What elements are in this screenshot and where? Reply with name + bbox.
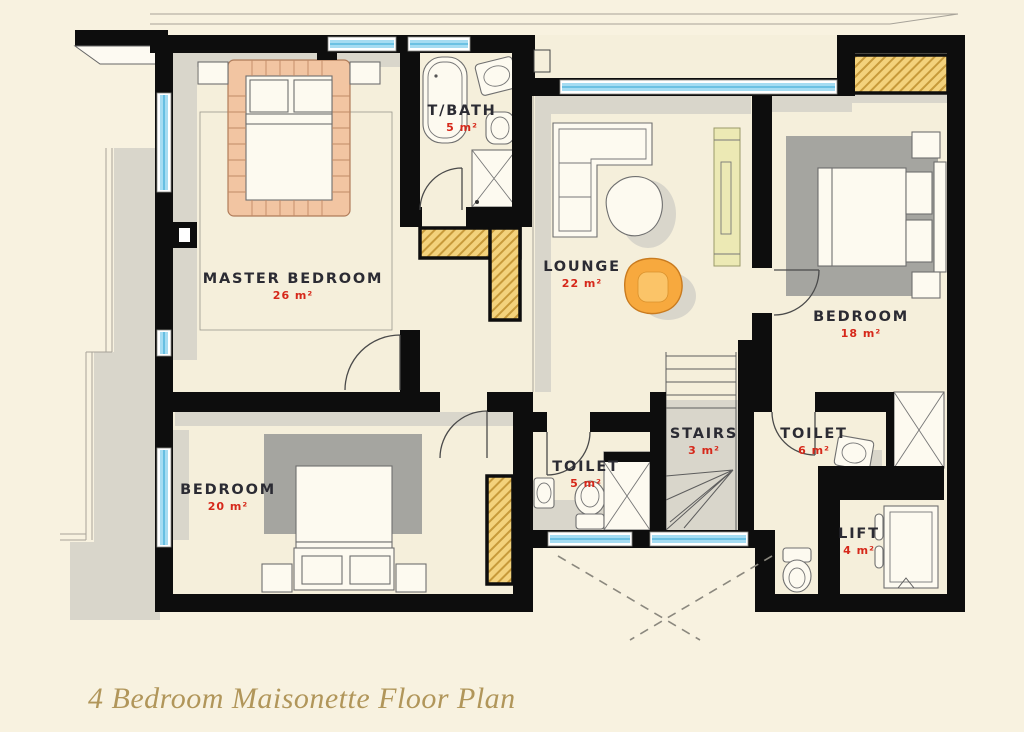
bedroom-right-shower: [894, 392, 944, 468]
window: [650, 532, 748, 546]
window: [560, 80, 837, 94]
room-name: BEDROOM: [813, 309, 909, 325]
room-area: 5 m²: [552, 478, 619, 490]
room-label-bedroom-bottom: BEDROOM 20 m²: [180, 483, 276, 513]
room-label-master-bedroom: MASTER BEDROOM 26 m²: [203, 272, 384, 302]
room-name: LOUNGE: [543, 259, 621, 275]
bath-shower: [472, 150, 516, 207]
pillow: [302, 556, 342, 584]
room-label-stairs: STAIRS 3 m²: [670, 427, 738, 457]
room-area: 5 m²: [427, 122, 496, 134]
room-area: 3 m²: [670, 445, 738, 457]
room-name: STAIRS: [670, 426, 738, 442]
room-name: TOILET: [552, 459, 619, 475]
pillow: [906, 172, 932, 214]
plan-title: 4 Bedroom Maisonette Floor Plan: [88, 682, 516, 716]
wardrobe-top-right: [852, 55, 948, 93]
window: [157, 330, 171, 356]
tv-console: [714, 128, 740, 266]
room-label-toilet-right: TOILET 6 m²: [780, 427, 847, 457]
armchair: [625, 258, 682, 313]
room-name: MASTER BEDROOM: [203, 271, 384, 287]
room-label-lounge: LOUNGE 22 m²: [543, 260, 621, 290]
room-area: 4 m²: [838, 545, 880, 557]
pillow: [294, 80, 332, 112]
room-name: BEDROOM: [180, 482, 276, 498]
room-label-tbath: T/BATH 5 m²: [427, 104, 496, 134]
window: [408, 37, 470, 51]
pillow: [250, 80, 288, 112]
dashed-lines: [558, 556, 772, 640]
room-name: TOILET: [780, 426, 847, 442]
coffee-table: [606, 177, 662, 236]
master-bed: [228, 60, 350, 216]
window: [157, 93, 171, 192]
floor-plan-graphic: [0, 0, 1024, 732]
room-label-lift: LIFT 4 m²: [838, 527, 880, 557]
window: [157, 448, 171, 547]
pillow: [906, 220, 932, 262]
wardrobe-bedroom-bottom: [487, 476, 513, 584]
entry-niche: [534, 50, 550, 72]
window: [328, 37, 396, 51]
room-name: LIFT: [838, 526, 880, 542]
room-area: 20 m²: [180, 501, 276, 513]
nightstand: [912, 132, 940, 158]
window: [548, 532, 632, 546]
nightstand: [396, 564, 426, 592]
room-area: 22 m²: [543, 278, 621, 290]
room-name: T/BATH: [427, 103, 496, 119]
toilet-right-wc: [783, 548, 811, 592]
wardrobe-hall-b: [490, 228, 520, 320]
room-label-bedroom-right: BEDROOM 18 m²: [813, 310, 909, 340]
pillow: [350, 556, 390, 584]
room-area: 6 m²: [780, 445, 847, 457]
lift-car: [875, 506, 938, 588]
nightstand: [912, 272, 940, 298]
room-area: 26 m²: [203, 290, 384, 302]
room-label-toilet-centre: TOILET 5 m²: [552, 460, 619, 490]
page-background: MASTER BEDROOM 26 m² T/BATH 5 m² LOUNGE …: [0, 0, 1024, 732]
toilet-centre-basin: [534, 478, 554, 508]
headboard: [934, 162, 946, 272]
room-area: 18 m²: [813, 328, 909, 340]
nightstand: [262, 564, 292, 592]
